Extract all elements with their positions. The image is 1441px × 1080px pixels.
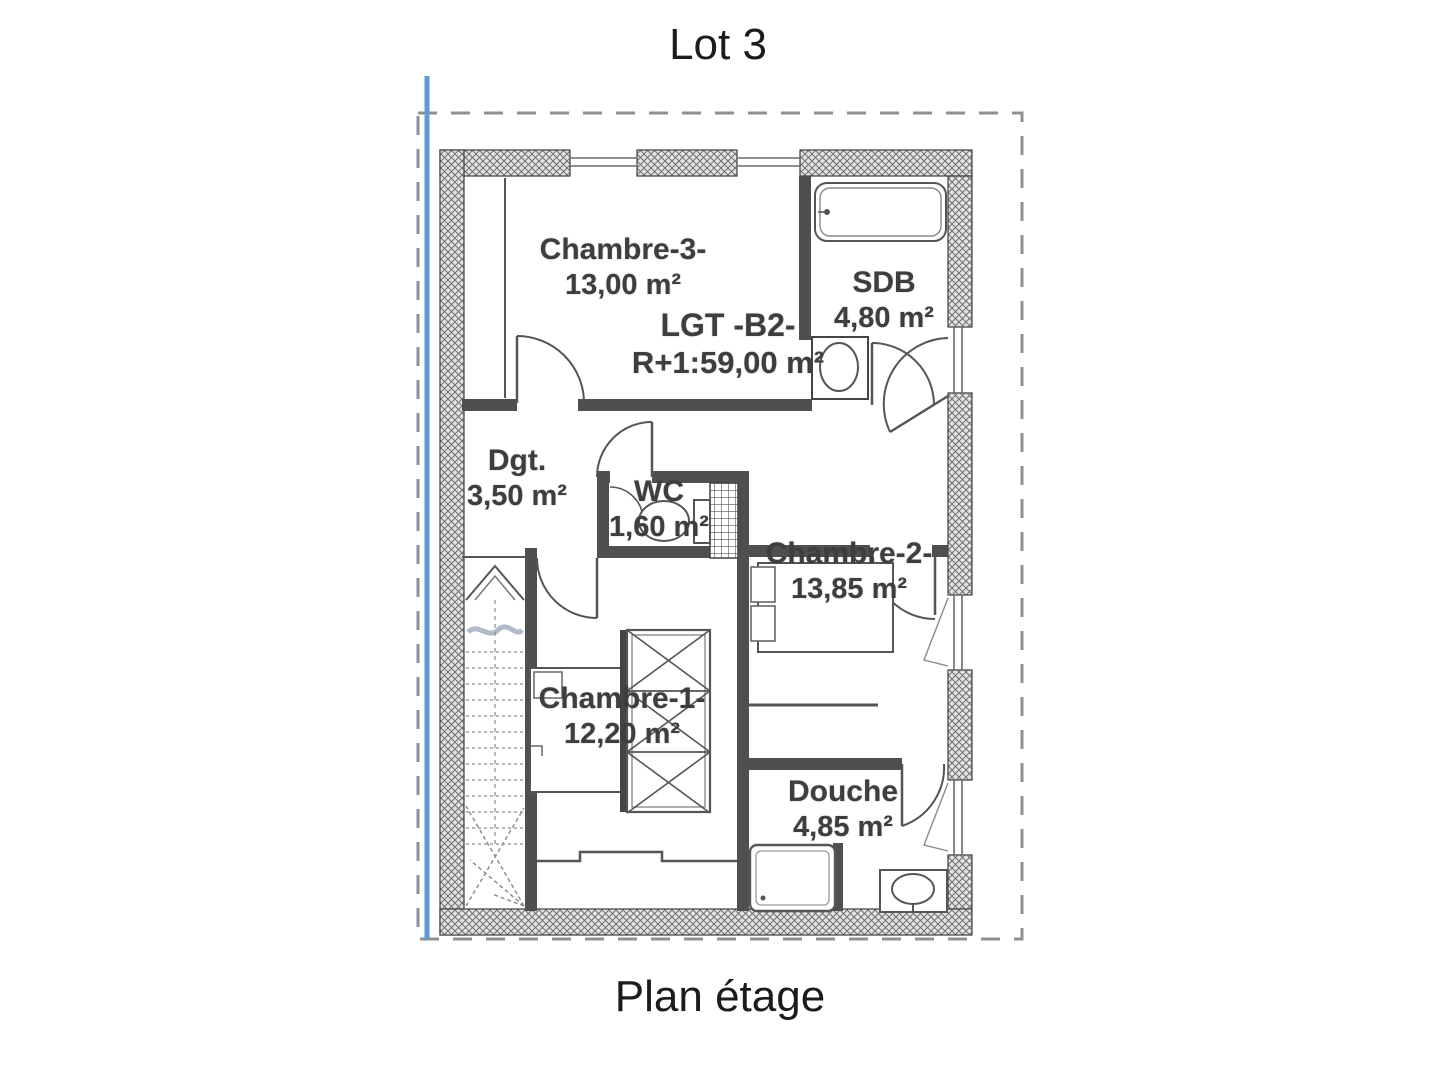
room-name: Douche <box>788 774 898 810</box>
shower-tray-icon <box>750 845 835 911</box>
room-area: 3,50 m² <box>467 479 567 514</box>
room-name: Chambre-2- <box>766 536 933 572</box>
room-area: R+1:59,00 m² <box>632 344 824 381</box>
room-area: 12,20 m² <box>539 717 706 752</box>
room-name: LGT -B2- <box>632 306 824 344</box>
room-area: 4,85 m² <box>788 810 898 845</box>
room-name: Dgt. <box>467 443 567 479</box>
room-label-dgt: Dgt. 3,50 m² <box>467 443 567 514</box>
room-name: WC <box>609 474 709 510</box>
floor-plan-page: Lot 3 <box>0 0 1441 1080</box>
room-area: 13,85 m² <box>766 572 933 607</box>
room-label-douche: Douche 4,85 m² <box>788 774 898 845</box>
bathtub-icon <box>815 183 946 241</box>
window-top-left <box>570 152 637 174</box>
floor-plan-drawing <box>0 0 1441 1080</box>
room-name: SDB <box>834 265 934 301</box>
room-label-chambre-2: Chambre-2- 13,85 m² <box>766 536 933 607</box>
room-area: 4,80 m² <box>834 301 934 336</box>
wc-duct <box>710 483 738 558</box>
room-label-sdb: SDB 4,80 m² <box>834 265 934 336</box>
room-name: Chambre-3- <box>540 232 707 268</box>
room-label-chambre-1: Chambre-1- 12,20 m² <box>539 681 706 752</box>
plan-caption: Plan étage <box>615 972 825 1022</box>
room-area: 13,00 m² <box>540 268 707 303</box>
room-label-wc: WC 1,60 m² <box>609 474 709 545</box>
room-area: 1,60 m² <box>609 510 709 545</box>
room-label-lgt-b2: LGT -B2- R+1:59,00 m² <box>632 306 824 382</box>
sink-icon <box>880 870 947 913</box>
room-label-chambre-3: Chambre-3- 13,00 m² <box>540 232 707 303</box>
room-name: Chambre-1- <box>539 681 706 717</box>
window-top-right <box>737 152 800 174</box>
